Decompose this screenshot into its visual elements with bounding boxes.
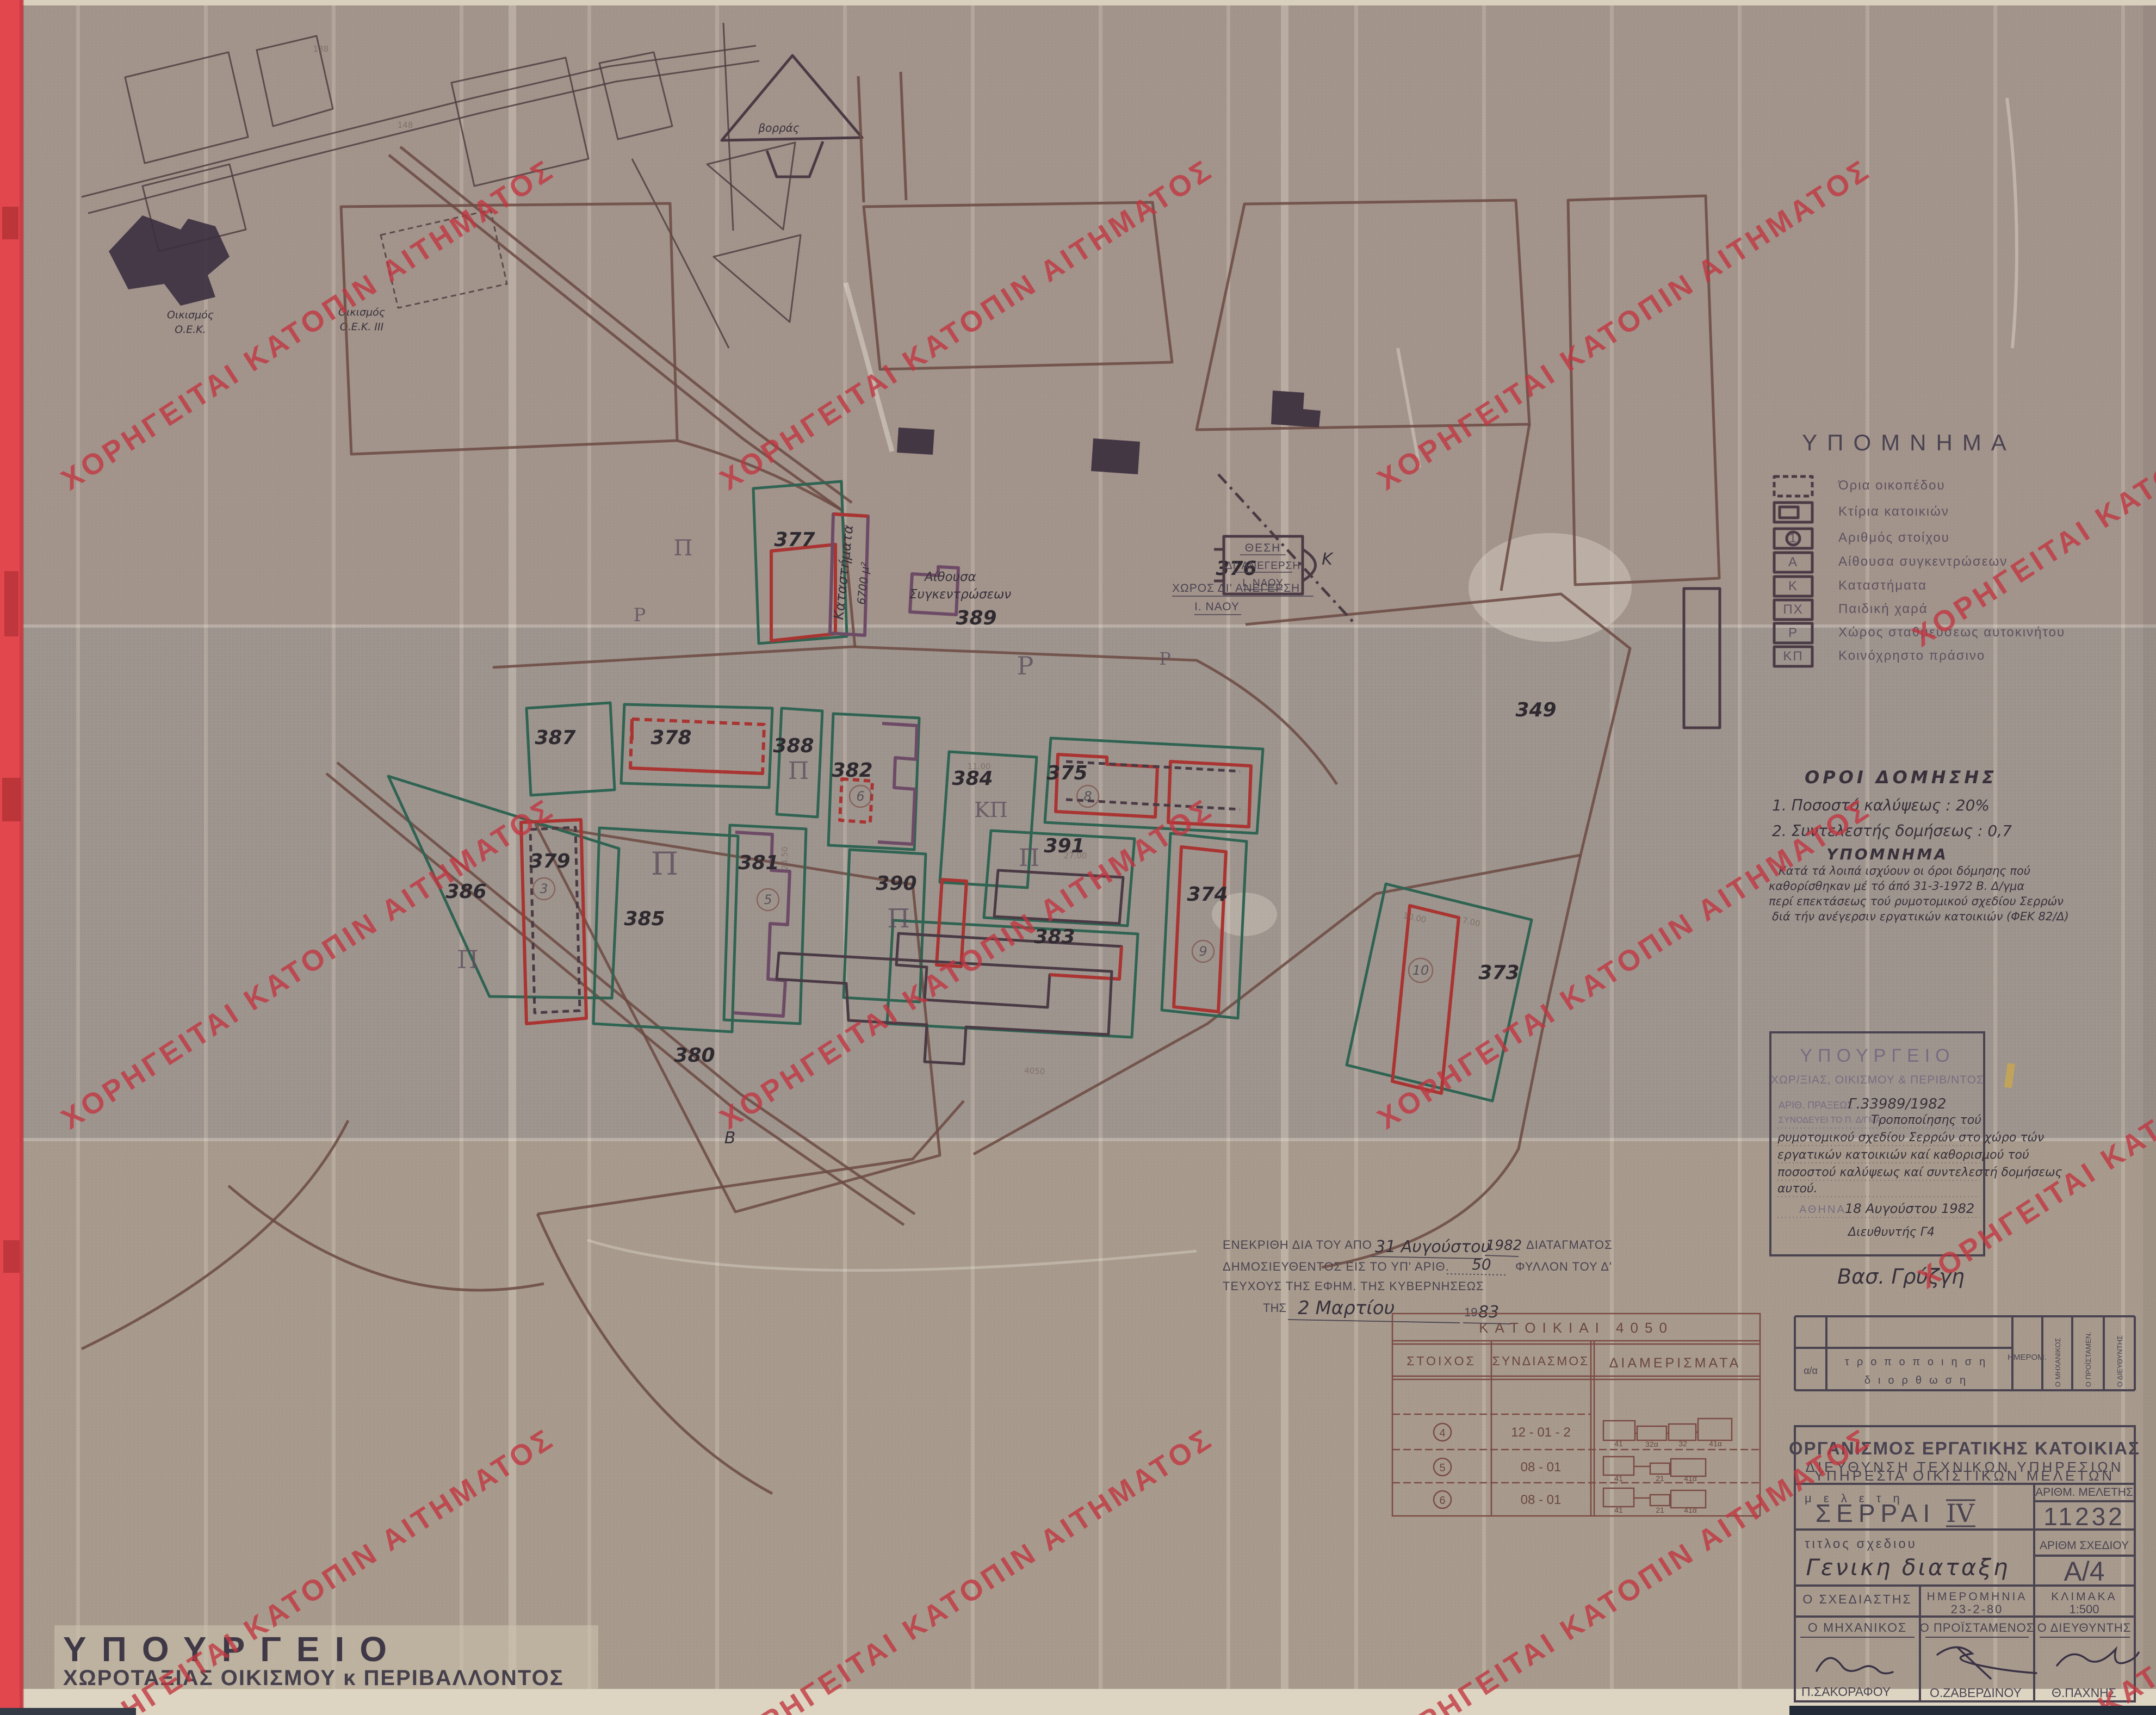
drawno-label: ΑΡΙΘΜ ΣΧΕΔΙΟΥ [2040,1539,2129,1552]
apt: 41 [1614,1506,1623,1514]
thesi-line2: ΔΙ' ΑΝΕΓΕΡΣΗ [1225,560,1300,572]
rev-col-date: ΗΜΕΡΟΜ. [2008,1353,2047,1362]
scale-label: ΚΛΙΜΑΚΑ [2051,1590,2117,1603]
building-shops-redtop [833,514,868,516]
legend-item: Καταστήματα [1838,578,1927,593]
plot-label-388: 388 [773,735,814,757]
north-label: βορράς [758,121,800,134]
apt: 21 [1656,1506,1664,1514]
approval-l1b: 31 Αυγούστου [1375,1237,1490,1256]
stoixos-num: 10 [1412,963,1429,978]
row-no: 4 [1439,1427,1445,1439]
stoixos-num: 9 [1199,944,1207,959]
zone-letter-p: Ρ [634,604,646,626]
terms-title: ΟΡΟΙ ΔΟΜΗΣΗΣ [1805,767,1997,788]
plot-label-378: 378 [650,727,691,749]
red-edge-strip [0,0,23,1715]
stamp-body-4: ποσοστού καλύψεως καί συντελεστή δομήσεω… [1777,1166,2062,1179]
approval-l1a: ΕΝΕΚΡΙΘΗ ΔΙΑ ΤΟΥ ΑΠΟ [1223,1238,1372,1252]
studyno-value: 11232 [2043,1502,2125,1531]
legend-item: Παιδική χαρά [1838,602,1928,616]
approval-l2b: 50 [1472,1255,1491,1273]
legend-glyph-1: 1 [1789,531,1797,546]
zone-letter-p: Ρ [1159,648,1171,669]
row-no: 6 [1439,1495,1445,1507]
approval-l4c: 19 [1464,1305,1477,1319]
apt: 41 [1614,1439,1623,1448]
stamp-ministry-1: ΥΠΟΥΡΓΕΙΟ [1800,1045,1955,1066]
legend-item: Αίθουσα συγκεντρώσεων [1838,554,2008,569]
legend-title: ΥΠΟΜΝΗΜΑ [1802,430,2016,455]
table-col-2: ΣΥΝΔΙΑΣΜΟΣ [1492,1354,1590,1368]
approval-l2c: ΦΥΛΛΟΝ ΤΟΥ Δ' [1515,1260,1612,1273]
engineer-label: Ο ΜΗΧΑΝΙΚΟΣ [1808,1620,1907,1634]
xoros-line2: Ι. ΝΑΟΥ [1194,600,1240,613]
plot-label-373: 373 [1478,962,1519,984]
rev-col-director: Ο ΔΙΕΥΘΥΝΤΗΣ [2116,1335,2124,1387]
zone-letter: Π [674,536,693,561]
plot-label-375: 375 [1046,762,1087,784]
table-col-3: ΔΙΑΜΕΡΙΣΜΑΤΑ [1609,1355,1742,1371]
apt: 41α [1684,1474,1697,1483]
row-combo: 08 - 01 [1521,1493,1562,1507]
approval-l4b: 2 Μαρτίου [1298,1297,1395,1319]
apt: 32 [1678,1439,1687,1448]
legend-item: Όρια οικοπέδου [1838,478,1946,493]
aithousa-line1: Αίθουσα [924,570,976,584]
legend-item: Αριθμός στοίχου [1838,530,1950,545]
terms-note-1: Κατά τά λοιπά ισχύουν οι όροι δόμησης πο… [1779,864,2030,877]
rev-col-engineer: Ο ΜΗΧΑΝΙΚΟΣ [2054,1338,2062,1387]
legend-glyph-A: Α [1788,555,1798,569]
stamp-body-5: αυτού. [1777,1182,1818,1196]
studyno-label: ΑΡΙΘΜ. ΜΕΛΕΤΗΣ [2035,1486,2133,1499]
inset-num: 138 [313,44,329,54]
terms-note-4: διά τήν ανέγερσιν εργατικών κατοικιών (Φ… [1772,910,2069,923]
plot-label-377: 377 [774,529,815,551]
head-name: Ο.ΖΑΒΕΡΔΙΝΟΥ [1930,1686,2022,1700]
inset-district-1b: Ο.Ε.Κ. [175,324,206,336]
approval-l3: ΤΕΥΧΟΥΣ ΤΗΣ ΕΦΗΜ. ΤΗΣ ΚΥΒΕΡΝΗΣΕΩΣ [1223,1279,1484,1293]
terms-note-3: περί επεκτάσεως τού ρυμοτομικού σχεδίου … [1769,895,2064,908]
stoixos-num: 6 [856,789,864,804]
date-label: ΗΜΕΡΟΜΗΝΙΑ [1927,1590,2028,1603]
inset-district-1: Οικισμός [167,309,214,321]
title-value: Γενικη διαταξη [1806,1554,2010,1581]
stamp-praxis-value: Γ.33989/1982 [1848,1096,1946,1112]
row-no: 5 [1439,1462,1445,1474]
white-patch [1469,533,1632,642]
apt: 21 [1656,1474,1664,1483]
plot-label-390: 390 [876,872,916,895]
thesi-line1: ΘΕΣΗ [1245,542,1281,554]
stoixos-num: 3 [540,881,548,896]
terms-item-1: 1. Ποσοστό καλύψεως : 20% [1772,796,1990,814]
stamp-accompany: ΣΥΝΟΔΕΥΕΙ ΤΟ Π. Δ/ΓΜΑ [1779,1116,1882,1125]
zone-letter: Π [887,903,910,934]
drawno-value: Α/4 [2064,1556,2104,1587]
approval-l1c: 1982 [1486,1237,1522,1254]
engineer-name: Π.ΣΑΚΟΡΑΦΟΥ [1801,1685,1891,1699]
legend-glyph-PX: ΠΧ [1783,602,1803,617]
stamp-date: 18 Αυγούστου 1982 [1845,1201,1974,1216]
bottom-dark-strip-right [1789,1706,2156,1715]
rev-col-head: Ο ΠΡΟΪΣΤΑΜΕΝ. [2084,1332,2092,1387]
row-combo: 08 - 01 [1521,1460,1562,1475]
approval-l2a: ΔΗΜΟΣΙΕΥΘΕΝΤΟΣ ΕΙΣ ΤΟ ΥΠ' ΑΡΙΘ. [1223,1260,1449,1273]
scale-value: 1:500 [2069,1602,2099,1616]
head-label: Ο ΠΡΟΪΣΤΑΜΕΝΟΣ [1920,1621,2035,1634]
zone-letter-kp: ΚΠ [974,798,1008,822]
stoixos-num: 8 [1083,789,1092,804]
zone-letter: Π [788,757,809,785]
legend-glyph-P: Ρ [1788,626,1798,640]
dim: 11.00 [968,761,991,771]
building-dark [1091,438,1140,474]
zone-letter-p: Ρ [1017,651,1034,680]
org-line-3: ΥΠΗΡΕΣΙΑ ΟΙΚΙΣΤΙΚΩΝ ΜΕΛΕΤΩΝ [1814,1468,2115,1484]
apt: 41α [1684,1506,1697,1514]
plot-label-385: 385 [624,908,665,930]
rev-col-aa: α/α [1804,1365,1818,1376]
bottom-dark-strip-left [0,1708,136,1715]
table-col-1: ΣΤΟΙΧΟΣ [1407,1354,1476,1368]
legend-item: Κοινόχρηστο πράσινο [1838,648,1985,663]
apt: 41α [1709,1439,1722,1448]
title-label: τιτλος σχεδιου [1805,1537,1917,1551]
stamp-ministry-2: ΧΩΡ/ΞΙΑΣ, ΟΙΚΙΣΜΟΥ & ΠΕΡΙΒ/ΝΤΟΣ [1771,1074,1984,1086]
stamp-body-3: εργατικών κατοικιών καί καθορισμού τού [1777,1148,2029,1162]
terms-note-title: ΥΠΟΜΝΗΜΑ [1826,845,1948,863]
rev-col-diorthosi: διορθωση [1864,1375,1973,1386]
drafter-label: Ο ΣΧΕΔΙΑΣΤΗΣ [1802,1592,1912,1606]
stamp-director: Διευθυντής Γ4 [1847,1225,1935,1239]
rev-col-tropopoiisi: τροποποιηση [1845,1356,1993,1368]
legend-glyph-K: Κ [1788,579,1798,593]
plot-label-381: 381 [738,852,779,874]
study-value: ΣΕΡΡΑΙ [1816,1499,1936,1527]
plot-label-379: 379 [529,850,570,872]
stoixos-num: 5 [764,892,772,907]
zone-letter: Π [457,945,479,974]
approval-l1d: ΔΙΑΤΑΓΜΑΤΟΣ [1526,1238,1613,1252]
plot-label-382: 382 [832,759,872,782]
stamp-city: ΑΘΗΝΑ [1799,1204,1846,1216]
stamp-body-2: ρυμοτομικού σχεδίου Σερρών στο χώρο τών [1777,1131,2044,1144]
dim: 4050 [1024,1066,1045,1076]
dim: 27.00 [1064,851,1087,860]
building-dark [897,428,934,455]
xoros-line1: ΧΩΡΟΣ ΔΙ' ΑΝΕΓΕΡΣΗ [1172,582,1300,595]
plot-label-387: 387 [535,727,575,749]
zone-letter: Π [651,845,679,882]
table-title: ΚΑΤΟΙΚΙΑΙ 4050 [1479,1320,1674,1336]
apt: 32α [1645,1440,1658,1448]
plot-label-374: 374 [1187,883,1228,906]
zone-letter: Π [1019,844,1039,872]
aithousa-line2: Συγκεντρώσεων [909,587,1011,602]
study-roman: IV [1946,1499,1974,1528]
plot-label-349: 349 [1515,699,1556,721]
legend-item: Κτίρια κατοικιών [1838,504,1949,519]
plot-label-389: 389 [956,607,996,629]
apt: 41 [1614,1474,1623,1483]
ministry-stamp: ΥΠΟΥΡΓΕΙΟ ΧΩΡΟΤΑΞΙΑΣ ΟΙΚΙΣΜΟΥ κ ΠΕΡΙΒΑΛΛ… [54,1625,598,1690]
row-combo: 12 - 01 - 2 [1511,1425,1570,1440]
legend-glyph-KP: ΚΠ [1783,649,1803,664]
dim: 24.50 [780,847,790,870]
stamp-body-1: Τροποποίησης τού [1871,1113,1981,1127]
terms-note-2: καθορίσθηκαν μέ τό άπό 31-3-1972 Β. Δ/γμ… [1769,880,2024,893]
stamp-praxis-label: ΑΡΙΘ. ΠΡΑΞΕΩΣ [1779,1100,1853,1111]
date-value: 23-2-80 [1951,1602,2004,1616]
director-label: Ο ΔΙΕΥΘΥΝΤΗΣ [2037,1621,2132,1634]
road-point-k: Κ [1322,550,1334,569]
approval-l4a: ΤΗΣ [1263,1301,1286,1315]
scanned-site-plan: Οικισμός Ο.Ε.Κ. Οικισμός Ο.Ε.Κ. ΙΙΙ 138 … [0,0,2156,1715]
approval-l4d: 83 [1478,1303,1499,1322]
inset-num: 148 [398,120,413,130]
plot-label-380: 380 [674,1044,715,1067]
